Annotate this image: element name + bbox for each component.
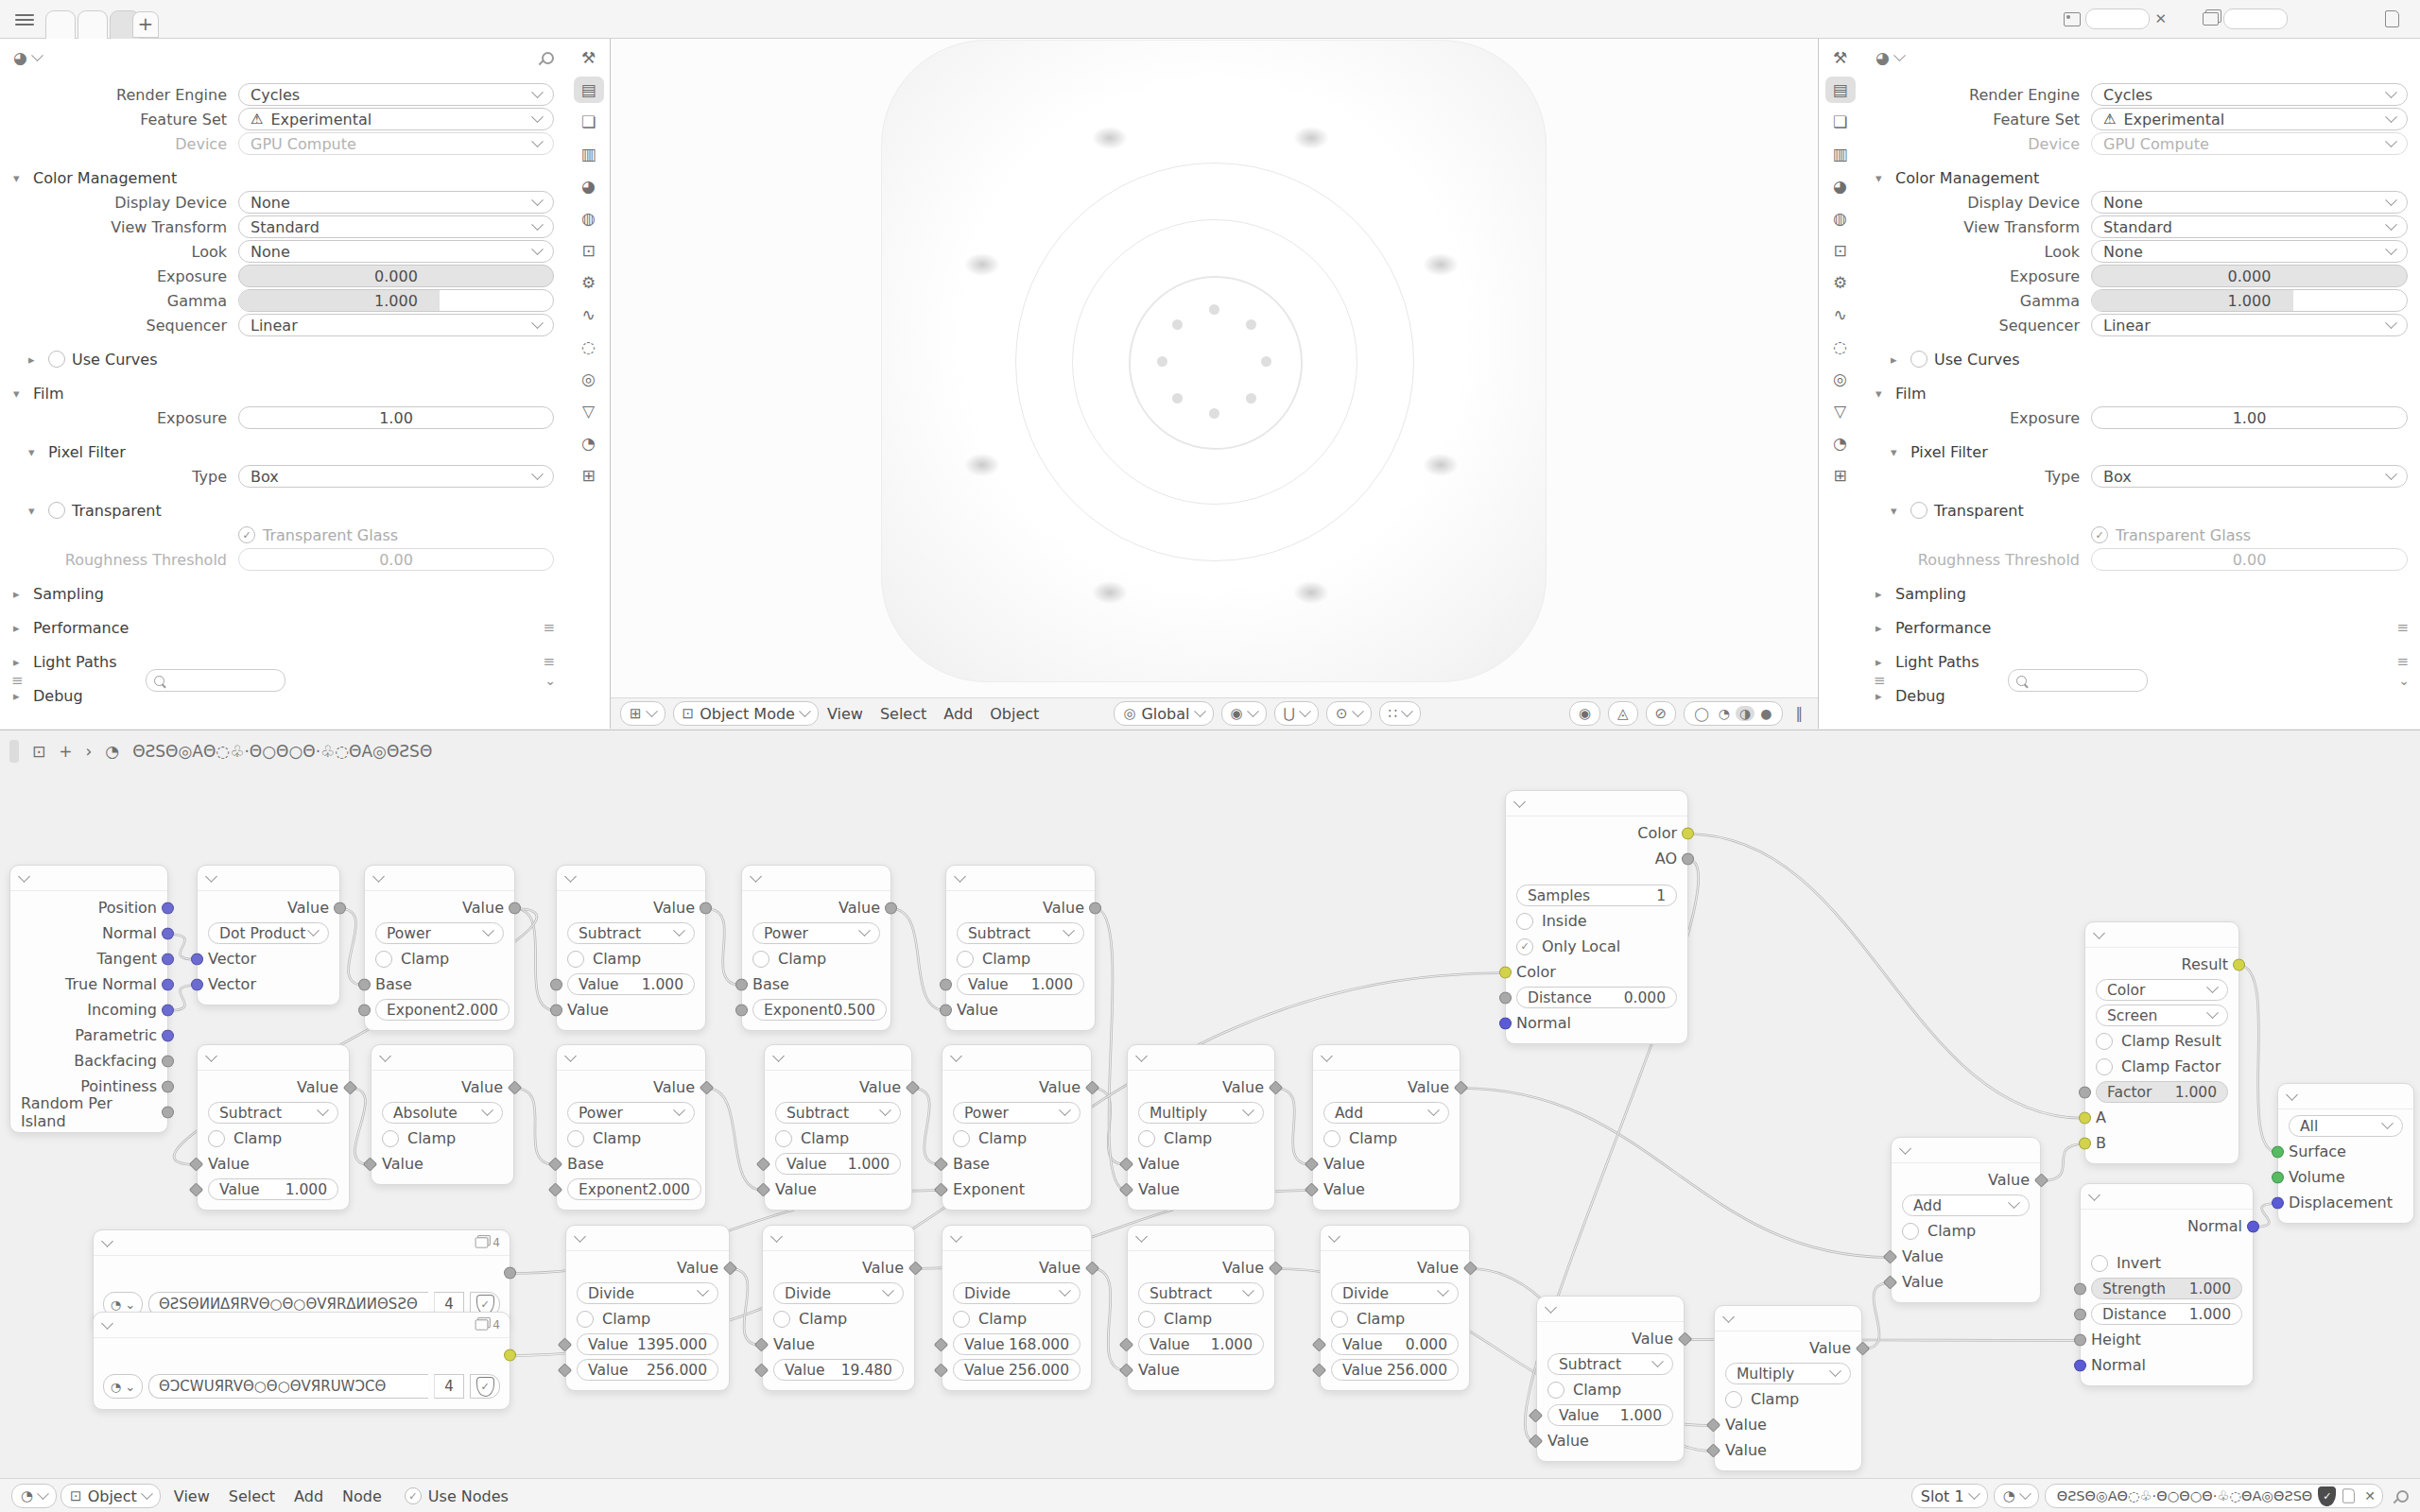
fake-user-toggle[interactable]: ✓ bbox=[470, 1374, 500, 1399]
input-socket[interactable] bbox=[1312, 1337, 1327, 1352]
value-field[interactable]: Distance1.000 bbox=[2091, 1303, 2242, 1325]
input-socket[interactable] bbox=[934, 1363, 949, 1378]
node-header[interactable] bbox=[557, 866, 705, 891]
output-socket[interactable] bbox=[1682, 827, 1694, 839]
node-math-multiply[interactable]: ValueMultiplyClampValueValue bbox=[1714, 1305, 1862, 1471]
tab-material-icon[interactable]: ◔ bbox=[574, 430, 604, 456]
chevron-down-icon[interactable] bbox=[372, 870, 385, 883]
filter-icon[interactable]: ≡ bbox=[11, 672, 23, 689]
material-browse-dropdown[interactable]: ◔ bbox=[1994, 1484, 2039, 1508]
dropdown-view-transform[interactable]: Standard bbox=[2091, 215, 2408, 238]
menu-icon[interactable]: ≡ bbox=[2396, 619, 2408, 636]
node-bump[interactable]: NormalInvertStrength1.000Distance1.000He… bbox=[2080, 1183, 2254, 1386]
use-nodes-toggle[interactable]: ✓ Use Nodes bbox=[405, 1487, 509, 1505]
shading-solid-icon[interactable]: ◔ bbox=[1715, 706, 1734, 721]
tab-modifiers-icon[interactable]: ⚙ bbox=[574, 269, 604, 296]
operation-dropdown[interactable]: Multiply bbox=[1138, 1102, 1264, 1124]
chevron-down-icon[interactable] bbox=[564, 1050, 577, 1062]
operation-dropdown[interactable]: Add bbox=[1323, 1102, 1449, 1124]
checkbox-unchecked[interactable] bbox=[1725, 1391, 1742, 1408]
tool-proportional-editing-icon[interactable]: ∷ bbox=[1379, 701, 1422, 726]
node-math-subtract[interactable]: ValueSubtractClampValueValue1.000 bbox=[197, 1044, 350, 1211]
search-input[interactable] bbox=[146, 669, 285, 692]
checkbox-unchecked[interactable] bbox=[48, 351, 65, 368]
slider-gamma[interactable]: 1.000 bbox=[238, 289, 554, 312]
value-field[interactable]: Value1395.000 bbox=[577, 1333, 718, 1355]
node-header[interactable] bbox=[1506, 791, 1687, 816]
chevron-down-icon[interactable] bbox=[2088, 1189, 2100, 1201]
checkbox-unchecked[interactable] bbox=[2096, 1058, 2113, 1075]
input-socket[interactable] bbox=[1529, 1434, 1544, 1449]
node-math-power[interactable]: ValuePowerClampBaseExponent bbox=[942, 1044, 1092, 1211]
node-header[interactable] bbox=[365, 866, 514, 891]
search-input[interactable] bbox=[2008, 669, 2148, 692]
pin-icon[interactable] bbox=[539, 49, 556, 66]
menu-icon[interactable]: ≡ bbox=[543, 619, 554, 636]
checkbox-unchecked[interactable] bbox=[2091, 1255, 2108, 1272]
input-socket[interactable] bbox=[735, 1004, 748, 1016]
shader-type-dropdown[interactable]: ⊡Object bbox=[60, 1484, 161, 1508]
operation-dropdown[interactable]: Subtract bbox=[775, 1102, 901, 1124]
chevron-down-icon[interactable] bbox=[950, 1230, 962, 1243]
output-socket[interactable] bbox=[1454, 1080, 1469, 1095]
node-math-power[interactable]: ValuePowerClampBaseExponent2.000 bbox=[364, 865, 515, 1031]
orientation-dropdown[interactable]: ◎Global bbox=[1114, 701, 1213, 726]
checkbox-unchecked[interactable] bbox=[567, 1130, 584, 1147]
input-socket[interactable] bbox=[1119, 1157, 1134, 1172]
pause-icon[interactable]: ‖ bbox=[1796, 705, 1804, 722]
value-field[interactable]: Value256.000 bbox=[953, 1359, 1080, 1381]
pin-icon[interactable] bbox=[2394, 1487, 2411, 1504]
chevron-down-icon[interactable] bbox=[379, 1050, 391, 1062]
checkbox-unchecked[interactable] bbox=[375, 951, 392, 968]
node-math-divide[interactable]: ValueDivideClampValue168.000Value256.000 bbox=[942, 1225, 1092, 1391]
value-field[interactable]: Samples1 bbox=[1516, 885, 1677, 906]
input-socket[interactable] bbox=[1312, 1363, 1327, 1378]
chevron-down-icon[interactable] bbox=[1545, 1301, 1557, 1314]
tab-constraints-icon[interactable]: ◎ bbox=[574, 366, 604, 392]
node-header[interactable] bbox=[557, 1045, 705, 1071]
tab-scene-icon[interactable]: ◕ bbox=[574, 173, 604, 199]
value-field[interactable]: Value1.000 bbox=[775, 1153, 901, 1175]
output-socket[interactable] bbox=[700, 902, 712, 914]
output-socket[interactable] bbox=[343, 1080, 358, 1095]
node-header[interactable] bbox=[2081, 1184, 2253, 1210]
node-math-subtract[interactable]: ValueSubtractClampValue1.000Value bbox=[1127, 1225, 1275, 1391]
input-socket[interactable] bbox=[2074, 1308, 2086, 1320]
menu-add[interactable]: Add bbox=[294, 1487, 323, 1505]
3d-viewport[interactable]: ⊞⊡Object ModeViewSelectAddObject◎Global◉… bbox=[611, 39, 1818, 729]
operation-dropdown[interactable]: Absolute bbox=[382, 1102, 503, 1124]
input-socket[interactable] bbox=[754, 1363, 769, 1378]
tab-tool-icon[interactable]: ⚒ bbox=[574, 44, 604, 71]
node-header[interactable] bbox=[1537, 1297, 1684, 1322]
slider-roughness-threshold[interactable]: 0.00 bbox=[238, 548, 554, 571]
dropdown-device[interactable]: GPU Compute bbox=[2091, 132, 2408, 155]
input-socket[interactable] bbox=[1305, 1157, 1320, 1172]
chevron-down-icon[interactable] bbox=[1321, 1050, 1333, 1062]
workspace-tab[interactable] bbox=[78, 10, 108, 39]
checkbox-unchecked[interactable] bbox=[953, 1311, 970, 1328]
add-workspace-button[interactable]: + bbox=[132, 11, 159, 38]
input-socket[interactable] bbox=[940, 1004, 952, 1016]
dropdown-feature-set[interactable]: ⚠Experimental bbox=[2091, 108, 2408, 130]
node-header[interactable] bbox=[1892, 1138, 2040, 1163]
node-math-subtract[interactable]: ValueSubtractClampValue1.000Value bbox=[764, 1044, 912, 1211]
operation-dropdown[interactable]: Power bbox=[375, 922, 504, 944]
operation-dropdown[interactable]: Power bbox=[567, 1102, 695, 1124]
value-field[interactable]: Value168.000 bbox=[953, 1333, 1080, 1355]
input-socket[interactable] bbox=[191, 953, 203, 965]
node-header[interactable] bbox=[10, 866, 167, 891]
input-socket[interactable] bbox=[548, 1182, 563, 1197]
input-socket[interactable] bbox=[558, 1363, 573, 1378]
node-header[interactable] bbox=[942, 1045, 1091, 1071]
section-color-management[interactable]: ▾Color Management bbox=[1862, 165, 2420, 190]
output-socket[interactable] bbox=[162, 927, 174, 939]
section-performance[interactable]: ▸Performance≡ bbox=[1862, 615, 2420, 640]
operation-dropdown[interactable]: All bbox=[2289, 1115, 2403, 1137]
tab-particles-icon[interactable]: ∿ bbox=[1825, 301, 1856, 328]
checkbox-unchecked[interactable] bbox=[577, 1311, 594, 1328]
output-socket[interactable] bbox=[723, 1261, 738, 1276]
node-header[interactable]: 4 bbox=[94, 1313, 510, 1338]
chevron-down-icon[interactable] bbox=[772, 1050, 785, 1062]
slot-dropdown[interactable]: Slot 1 bbox=[1911, 1484, 1988, 1508]
output-socket[interactable] bbox=[504, 1349, 516, 1361]
section-transparent[interactable]: ▾Transparent bbox=[1862, 498, 2420, 523]
section-performance[interactable]: ▸Performance≡ bbox=[0, 615, 567, 640]
menu-view[interactable]: View bbox=[174, 1487, 210, 1505]
value-field[interactable]: Value0.000 bbox=[1331, 1333, 1459, 1355]
input-socket[interactable] bbox=[1883, 1249, 1898, 1264]
chevron-down-icon[interactable] bbox=[1135, 1050, 1148, 1062]
tool-pivot-point-icon[interactable]: ◉ bbox=[1221, 701, 1267, 726]
tab-object-data-icon[interactable]: ▽ bbox=[574, 398, 604, 424]
move-icon[interactable]: + bbox=[59, 742, 72, 761]
section-transparent[interactable]: ▾Transparent bbox=[0, 498, 567, 523]
input-socket[interactable] bbox=[756, 1182, 771, 1197]
section-use-curves[interactable]: ▸Use Curves bbox=[1862, 347, 2420, 371]
slider-exposure[interactable]: 0.000 bbox=[2091, 265, 2408, 287]
input-socket[interactable] bbox=[2074, 1282, 2086, 1295]
operation-dropdown[interactable]: Subtract bbox=[208, 1102, 338, 1124]
node-math-power[interactable]: ValuePowerClampBaseExponent2.000 bbox=[556, 1044, 706, 1211]
node-math-subtract[interactable]: ValueSubtractClampValue1.000Value bbox=[945, 865, 1096, 1031]
slider-exposure[interactable]: 1.00 bbox=[238, 406, 554, 429]
editor-type-button[interactable]: ⊞ bbox=[620, 701, 665, 726]
output-socket[interactable] bbox=[2034, 1173, 2049, 1188]
tab-texture-icon[interactable]: ⊞ bbox=[1825, 462, 1856, 489]
checkbox-unchecked[interactable] bbox=[2096, 1033, 2113, 1050]
menu-object[interactable]: Object bbox=[990, 705, 1039, 723]
node-math-subtract[interactable]: ValueSubtractClampValue1.000Value bbox=[1536, 1296, 1685, 1462]
input-socket[interactable] bbox=[934, 1337, 949, 1352]
section-pixel-filter[interactable]: ▾Pixel Filter bbox=[1862, 439, 2420, 464]
input-socket[interactable] bbox=[1529, 1408, 1544, 1423]
input-socket[interactable] bbox=[2074, 1359, 2086, 1371]
chevron-down-icon[interactable] bbox=[574, 1230, 586, 1243]
output-socket[interactable] bbox=[504, 1266, 516, 1279]
input-socket[interactable] bbox=[363, 1157, 378, 1172]
node-header[interactable] bbox=[742, 866, 890, 891]
value-field[interactable]: Value256.000 bbox=[1331, 1359, 1459, 1381]
menu-select[interactable]: Select bbox=[880, 705, 926, 723]
menu-node[interactable]: Node bbox=[342, 1487, 382, 1505]
node-vector-math-dot-product[interactable]: ValueDot ProductVectorVector bbox=[197, 865, 340, 1005]
value-field[interactable]: Exponent2.000 bbox=[567, 1178, 701, 1200]
tab-particles-icon[interactable]: ∿ bbox=[574, 301, 604, 328]
output-socket[interactable] bbox=[162, 1080, 174, 1092]
checkbox-unchecked[interactable] bbox=[567, 951, 584, 968]
input-socket[interactable] bbox=[548, 1157, 563, 1172]
node-mix-color[interactable]: ResultColorScreenClamp ResultClamp Facto… bbox=[2084, 921, 2239, 1164]
section-use-curves[interactable]: ▸Use Curves bbox=[0, 347, 567, 371]
dropdown-render-engine[interactable]: Cycles bbox=[238, 83, 554, 106]
input-socket[interactable] bbox=[2272, 1145, 2284, 1158]
checkbox-unchecked[interactable] bbox=[1138, 1311, 1155, 1328]
operation-dropdown[interactable]: Power bbox=[953, 1102, 1080, 1124]
output-socket[interactable] bbox=[1089, 902, 1101, 914]
fake-user-shield-icon[interactable]: ✓ bbox=[2318, 1486, 2336, 1506]
section-pixel-filter[interactable]: ▾Pixel Filter bbox=[0, 439, 567, 464]
box-select-icon[interactable]: ⊡ bbox=[32, 742, 45, 761]
checkbox-unchecked[interactable] bbox=[775, 1130, 792, 1147]
output-socket[interactable] bbox=[1463, 1261, 1478, 1276]
dropdown-view-transform[interactable]: Standard bbox=[238, 215, 554, 238]
editor-type-button[interactable]: ◔ bbox=[11, 1484, 57, 1508]
input-socket[interactable] bbox=[358, 978, 371, 990]
input-socket[interactable] bbox=[735, 978, 748, 990]
collapse-icon[interactable]: ⌄ bbox=[544, 673, 556, 688]
scene-selector[interactable]: ✕ bbox=[2064, 8, 2167, 30]
slider-exposure[interactable]: 0.000 bbox=[238, 265, 554, 287]
tab-physics-icon[interactable]: ◌ bbox=[1825, 334, 1856, 360]
input-socket[interactable] bbox=[754, 1337, 769, 1352]
input-socket[interactable] bbox=[2074, 1333, 2086, 1346]
view-overlays-icon[interactable]: ◬ bbox=[1608, 701, 1638, 726]
chevron-down-icon[interactable] bbox=[2286, 1089, 2298, 1101]
input-socket[interactable] bbox=[2079, 1111, 2091, 1124]
dropdown-device[interactable]: GPU Compute bbox=[238, 132, 554, 155]
chevron-down-icon[interactable] bbox=[2093, 927, 2105, 939]
node-header[interactable] bbox=[1128, 1045, 1274, 1071]
output-socket[interactable] bbox=[162, 953, 174, 965]
menu-add[interactable]: Add bbox=[943, 705, 973, 723]
checkbox-unchecked[interactable] bbox=[773, 1311, 790, 1328]
section-film[interactable]: ▾Film bbox=[1862, 381, 2420, 405]
value-field[interactable]: Value1.000 bbox=[567, 973, 695, 995]
operation-dropdown[interactable]: Subtract bbox=[957, 922, 1084, 944]
input-socket[interactable] bbox=[2272, 1196, 2284, 1209]
output-socket[interactable] bbox=[906, 1080, 921, 1095]
dropdown-display-device[interactable]: None bbox=[2091, 191, 2408, 214]
node-header[interactable] bbox=[198, 1045, 349, 1071]
node-node-group[interactable]: 4◔ ⌄ΘƆCWUЯRVΘ○Θ○ΘVЯRUWƆCΘ4✓ bbox=[93, 1312, 510, 1410]
output-socket[interactable] bbox=[2247, 1220, 2259, 1232]
checkbox-unchecked[interactable] bbox=[1323, 1130, 1340, 1147]
checkbox-unchecked[interactable] bbox=[1138, 1130, 1155, 1147]
input-socket[interactable] bbox=[1119, 1182, 1134, 1197]
datablock-name[interactable]: ΘƆCWUЯRVΘ○Θ○ΘVЯRUWƆCΘ bbox=[148, 1374, 428, 1399]
chevron-down-icon[interactable] bbox=[564, 870, 577, 883]
output-socket[interactable] bbox=[162, 1106, 174, 1118]
operation-dropdown[interactable]: Divide bbox=[953, 1282, 1080, 1304]
input-socket[interactable] bbox=[934, 1157, 949, 1172]
input-socket[interactable] bbox=[2079, 1137, 2091, 1149]
user-count[interactable]: 4 bbox=[434, 1374, 464, 1399]
output-socket[interactable] bbox=[508, 1080, 523, 1095]
output-socket[interactable] bbox=[1085, 1080, 1100, 1095]
app-menu-icon[interactable] bbox=[15, 11, 34, 25]
node-header[interactable] bbox=[763, 1226, 914, 1251]
node-header[interactable] bbox=[198, 866, 339, 891]
operation-dropdown[interactable]: Multiply bbox=[1725, 1363, 1851, 1384]
input-socket[interactable] bbox=[1499, 1017, 1512, 1029]
tool-snap-target-icon[interactable]: ⊙ bbox=[1326, 701, 1372, 726]
view-xray-icon[interactable]: ⊘ bbox=[1646, 701, 1677, 726]
value-field[interactable]: Value1.000 bbox=[957, 973, 1084, 995]
node-math-add[interactable]: ValueAddClampValueValue bbox=[1312, 1044, 1461, 1211]
input-socket[interactable] bbox=[1499, 966, 1512, 978]
operation-dropdown[interactable]: Divide bbox=[773, 1282, 904, 1304]
input-socket[interactable] bbox=[191, 978, 203, 990]
checkbox-unchecked[interactable] bbox=[1516, 913, 1533, 930]
input-socket[interactable] bbox=[550, 978, 562, 990]
output-socket[interactable] bbox=[162, 1029, 174, 1041]
output-socket[interactable] bbox=[334, 902, 346, 914]
tab-material-icon[interactable]: ◔ bbox=[1825, 430, 1856, 456]
input-socket[interactable] bbox=[1706, 1417, 1721, 1433]
output-socket[interactable] bbox=[1682, 852, 1694, 865]
chevron-down-icon[interactable] bbox=[770, 1230, 783, 1243]
tab-view-layer-icon[interactable]: ▥ bbox=[574, 141, 604, 167]
tab-modifiers-icon[interactable]: ⚙ bbox=[1825, 269, 1856, 296]
section-film[interactable]: ▾Film bbox=[0, 381, 567, 405]
input-socket[interactable] bbox=[934, 1182, 949, 1197]
node-math-multiply[interactable]: ValueMultiplyClampValueValue bbox=[1127, 1044, 1275, 1211]
chevron-down-icon[interactable] bbox=[1513, 796, 1526, 808]
workspace-tab[interactable] bbox=[45, 10, 76, 39]
collapse-icon[interactable]: ⌄ bbox=[2398, 673, 2410, 688]
chevron-down-icon[interactable] bbox=[18, 870, 30, 883]
output-socket[interactable] bbox=[2233, 958, 2245, 971]
output-socket[interactable] bbox=[1678, 1332, 1693, 1347]
operation-dropdown[interactable]: Divide bbox=[1331, 1282, 1459, 1304]
slider-exposure[interactable]: 1.00 bbox=[2091, 406, 2408, 429]
output-socket[interactable] bbox=[1085, 1261, 1100, 1276]
checkbox-checked[interactable]: ✓ bbox=[2091, 526, 2108, 543]
extras[interactable] bbox=[2385, 8, 2399, 30]
node-header[interactable] bbox=[765, 1045, 911, 1071]
node-header[interactable] bbox=[2085, 922, 2238, 948]
chevron-down-icon[interactable] bbox=[1135, 1230, 1148, 1243]
checkbox-unchecked[interactable] bbox=[1910, 351, 1927, 368]
operation-dropdown[interactable]: Subtract bbox=[567, 922, 695, 944]
tab-world-icon[interactable]: ◍ bbox=[574, 205, 604, 232]
value-field[interactable]: Distance0.000 bbox=[1516, 987, 1677, 1008]
checkbox-unchecked[interactable] bbox=[953, 1130, 970, 1147]
tab-world-icon[interactable]: ◍ bbox=[1825, 205, 1856, 232]
input-socket[interactable] bbox=[1305, 1182, 1320, 1197]
menu-select[interactable]: Select bbox=[229, 1487, 275, 1505]
filter-icon[interactable]: ≡ bbox=[1874, 672, 1885, 689]
mode-dropdown[interactable]: ⊡Object Mode bbox=[673, 701, 819, 726]
dropdown-look[interactable]: None bbox=[238, 240, 554, 263]
node-header[interactable] bbox=[372, 1045, 513, 1071]
tool-snapping-magnet-icon[interactable]: ⋃ bbox=[1274, 701, 1319, 726]
checkbox-unchecked[interactable] bbox=[208, 1130, 225, 1147]
unlink-icon[interactable]: ✕ bbox=[2154, 10, 2167, 27]
tab-texture-icon[interactable]: ⊞ bbox=[574, 462, 604, 489]
checkbox-unchecked[interactable] bbox=[957, 951, 974, 968]
tab-view-layer-icon[interactable]: ▥ bbox=[1825, 141, 1856, 167]
tab-physics-icon[interactable]: ◌ bbox=[574, 334, 604, 360]
dropdown-type[interactable]: Box bbox=[238, 465, 554, 488]
operation-dropdown[interactable]: Subtract bbox=[1138, 1282, 1264, 1304]
node-math-subtract[interactable]: ValueSubtractClampValue1.000Value bbox=[556, 865, 706, 1031]
node-header[interactable] bbox=[942, 1226, 1091, 1251]
output-socket[interactable] bbox=[908, 1261, 924, 1276]
tab-constraints-icon[interactable]: ◎ bbox=[1825, 366, 1856, 392]
value-field[interactable]: Exponent0.500 bbox=[752, 999, 887, 1021]
node-math-divide[interactable]: ValueDivideClampValueValue19.480 bbox=[762, 1225, 915, 1391]
value-field[interactable]: Value1.000 bbox=[1547, 1404, 1673, 1426]
dropdown-sequencer[interactable]: Linear bbox=[2091, 314, 2408, 336]
tab-object-icon[interactable]: ⊡ bbox=[574, 237, 604, 264]
dropdown-look[interactable]: None bbox=[2091, 240, 2408, 263]
output-socket[interactable] bbox=[1856, 1341, 1871, 1356]
viewport-object[interactable] bbox=[881, 40, 1547, 682]
node-header[interactable]: 4 bbox=[94, 1230, 510, 1256]
node-header[interactable] bbox=[1715, 1306, 1861, 1332]
output-socket[interactable] bbox=[700, 1080, 715, 1095]
output-socket[interactable] bbox=[162, 1055, 174, 1067]
node-math-add[interactable]: ValueAddClampValueValue bbox=[1891, 1137, 2041, 1303]
material-browse-dropdown[interactable]: ◔ ⌄ bbox=[103, 1374, 143, 1399]
output-socket[interactable] bbox=[885, 902, 897, 914]
output-socket[interactable] bbox=[1269, 1080, 1284, 1095]
chevron-down-icon[interactable] bbox=[101, 1235, 113, 1247]
shading-material-icon[interactable]: ◑ bbox=[1736, 706, 1754, 721]
operation-dropdown[interactable]: Power bbox=[752, 922, 880, 944]
node-header[interactable] bbox=[1128, 1226, 1274, 1251]
section-color-management[interactable]: ▾Color Management bbox=[0, 165, 567, 190]
input-socket[interactable] bbox=[358, 1004, 371, 1016]
chevron-down-icon[interactable] bbox=[954, 870, 966, 883]
value-field[interactable]: Value1.000 bbox=[1138, 1333, 1264, 1355]
input-socket[interactable] bbox=[550, 1004, 562, 1016]
material-name-field[interactable]: ΘƧSΘ◎AΘ◌♧·Θ○Θ○Θ·♧◌ΘA◎ΘƧSΘ ✓ ✕ bbox=[2045, 1484, 2383, 1508]
tab-render-icon[interactable]: ▤ bbox=[1825, 77, 1856, 103]
output-socket[interactable] bbox=[162, 1004, 174, 1016]
chevron-down-icon[interactable] bbox=[205, 1050, 217, 1062]
checkbox-checked[interactable]: ✓ bbox=[238, 526, 255, 543]
tab-object-icon[interactable]: ⊡ bbox=[1825, 237, 1856, 264]
section-sampling[interactable]: ▸Sampling bbox=[1862, 581, 2420, 606]
node-math-divide[interactable]: ValueDivideClampValue0.000Value256.000 bbox=[1320, 1225, 1470, 1391]
slider-roughness-threshold[interactable]: 0.00 bbox=[2091, 548, 2408, 571]
chevron-down-icon[interactable] bbox=[101, 1317, 113, 1330]
dropdown-feature-set[interactable]: ⚠Experimental bbox=[238, 108, 554, 130]
section-sampling[interactable]: ▸Sampling bbox=[0, 581, 567, 606]
checkbox-unchecked[interactable] bbox=[1331, 1311, 1348, 1328]
checkbox-checked[interactable]: ✓ bbox=[1516, 938, 1533, 955]
input-socket[interactable] bbox=[189, 1157, 204, 1172]
input-socket[interactable] bbox=[940, 978, 952, 990]
view-layer-selector[interactable] bbox=[2203, 8, 2288, 30]
checkbox-unchecked[interactable] bbox=[1547, 1382, 1564, 1399]
